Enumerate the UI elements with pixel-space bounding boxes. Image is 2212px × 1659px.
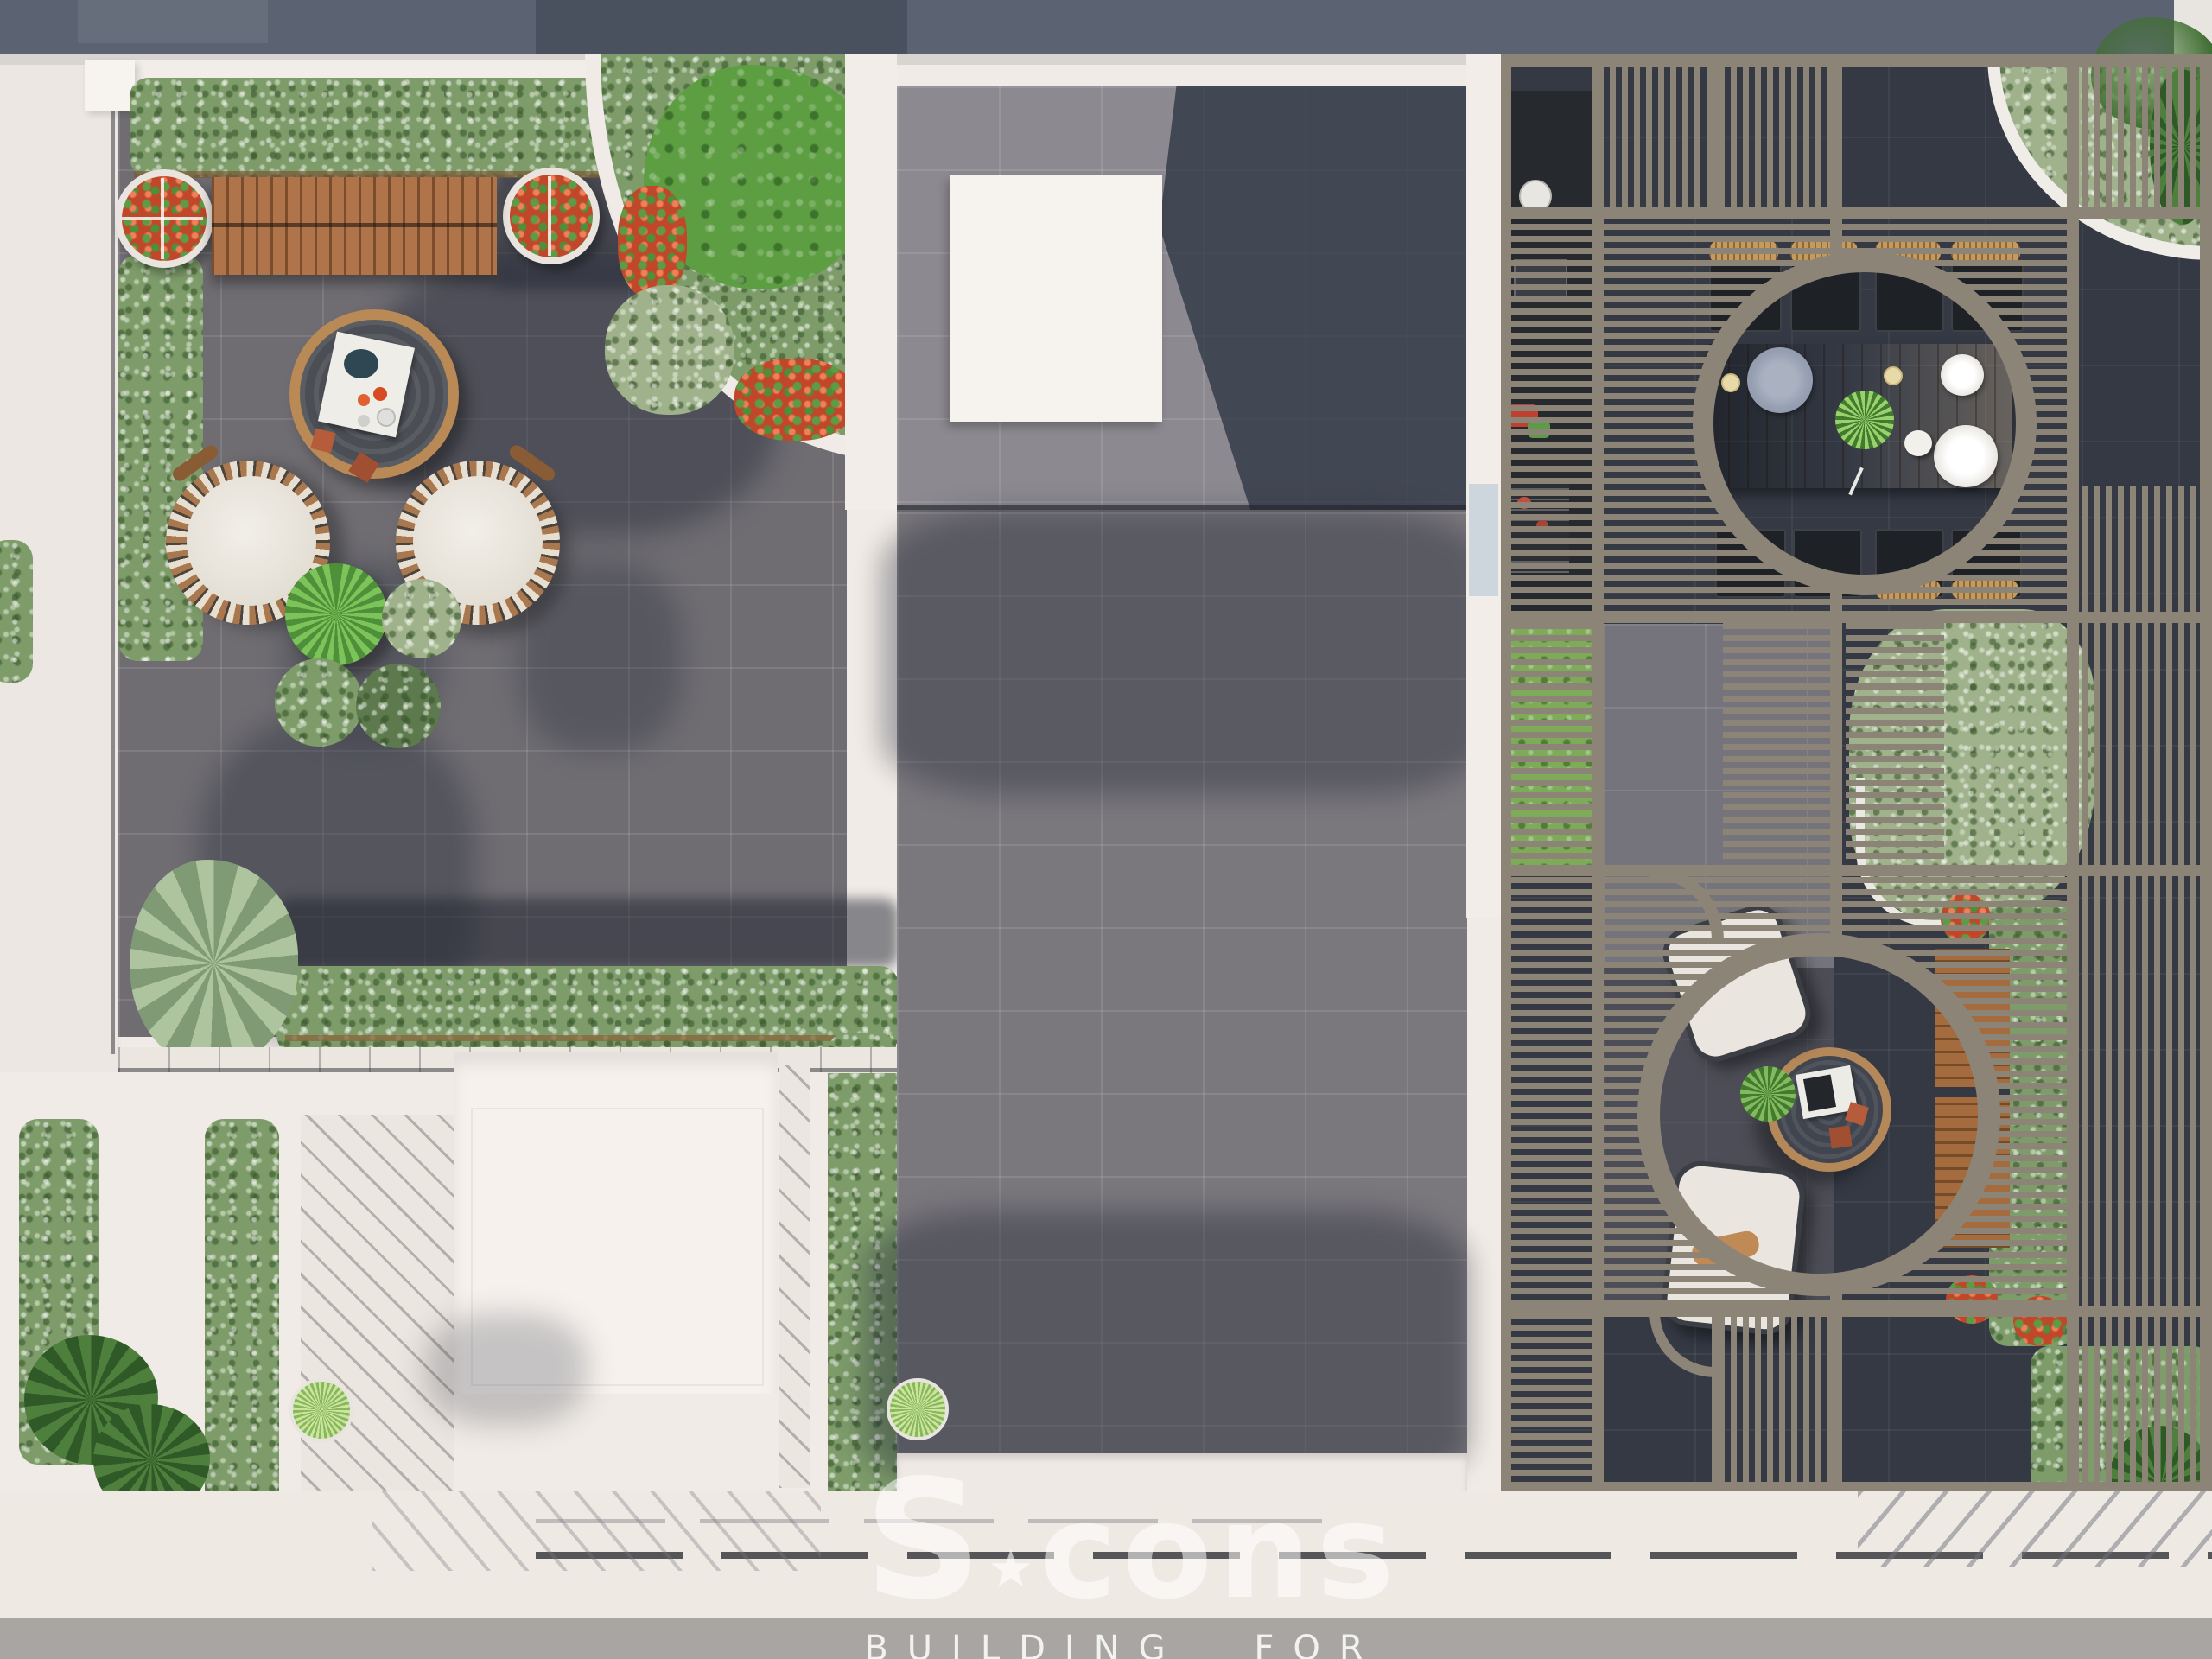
walkway-diag-shadow-right (1858, 1491, 2212, 1567)
tray-cup-1 (377, 408, 396, 427)
hedge-top-row (130, 78, 613, 177)
white-flower-pot (382, 579, 461, 658)
left-wall-groove (111, 104, 115, 1054)
courtyard-shadow-mid (881, 510, 1486, 795)
grass-planter-courtyard (887, 1378, 949, 1440)
pergola-overlay (1501, 54, 2212, 1493)
right-wall-glass (1469, 484, 1498, 596)
tray-fruit-1 (373, 387, 387, 401)
hedge-mid-planter-edge (285, 1035, 890, 1041)
star-icon: ★ (988, 1539, 1039, 1599)
walkway-diag-shadow-left (372, 1491, 821, 1571)
grass-pot-lower (289, 1378, 353, 1442)
schefflera-pale-plant (130, 860, 298, 1067)
shrub-pot-2 (356, 664, 441, 748)
tray-cup-2 (358, 415, 370, 427)
top-band-shadow-patch (536, 0, 907, 54)
logo-cons: cons (1039, 1475, 1400, 1628)
flower-planter-2-cross (548, 176, 551, 256)
lower-hedge-v2 (205, 1119, 279, 1551)
logo-letter-s: S (864, 1445, 988, 1636)
fan-palm-pot (285, 563, 387, 665)
logo-tagline: BUILDING FOR LIFE (864, 1631, 1382, 1659)
top-band-shadow-patch2 (78, 0, 268, 43)
corner-white-flowers (605, 285, 734, 415)
watermark-logo: S★cons BUILDING FOR LIFE (864, 1459, 1382, 1659)
flower-planter-2-flowers (510, 175, 593, 257)
lower-deck-boards (301, 1115, 454, 1540)
flower-planter-1-cross2 (122, 217, 203, 220)
tray-fruit-2 (358, 394, 370, 406)
left-edge-leaves (0, 540, 33, 683)
top-adjacent-roof-band (0, 0, 2212, 54)
hedge-silhouette-shadow (276, 899, 899, 968)
shrub-pot-1 (275, 658, 363, 747)
corner-red-flowers-2 (734, 359, 855, 441)
tray-bowl (344, 349, 378, 378)
lower-roof-plant-shadow (423, 1313, 588, 1426)
rooftop-terrace-render: S★cons BUILDING FOR LIFE (0, 0, 2212, 1659)
skylight-box (950, 175, 1162, 422)
courtyard-left-wall-band (845, 54, 897, 510)
corner-red-flowers-1 (618, 186, 687, 298)
wood-bench-split (212, 223, 497, 227)
terrace-wall-pillar (85, 60, 135, 111)
logo-wordmark: S★cons (864, 1459, 1382, 1623)
lower-deck-strip (779, 1065, 810, 1488)
